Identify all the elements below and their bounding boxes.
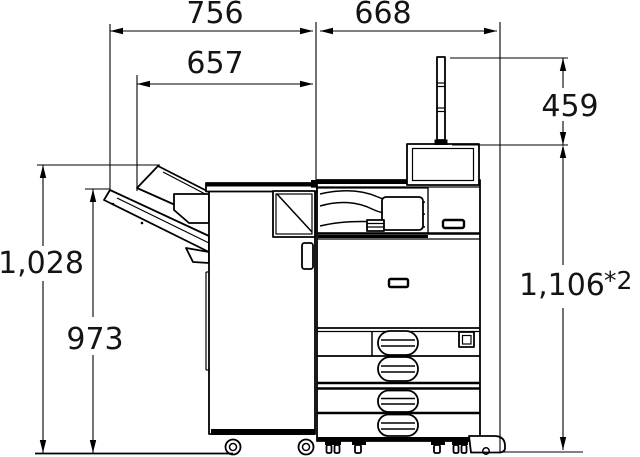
dim-label-668: 668	[354, 0, 411, 31]
door-catch-tab	[302, 243, 313, 269]
tray4-handle	[378, 415, 418, 437]
dimension-diagram-svg: 756 668 657 459 1,028 973 1,106 *2	[0, 0, 640, 457]
finisher-upper-tray-bracket	[174, 194, 209, 223]
tray1-handle	[378, 331, 418, 355]
foot-1	[325, 442, 341, 454]
dim-973	[85, 189, 110, 453]
dim-label-1106-note: *2	[604, 266, 632, 295]
foot-3	[431, 442, 445, 454]
dim-label-756: 756	[186, 0, 243, 31]
finisher-caster-left	[226, 440, 241, 455]
output-tray-wall	[382, 197, 423, 230]
finisher-unit	[104, 166, 317, 455]
diagram-stage: 756 668 657 459 1,028 973 1,106 *2	[0, 0, 640, 457]
output-paper-stop	[367, 220, 384, 231]
control-panel	[407, 144, 479, 185]
dim-label-1028: 1,028	[0, 246, 84, 281]
printer-unit	[302, 57, 505, 454]
dim-label-1106: 1,106	[519, 268, 605, 303]
foot-4	[452, 442, 468, 454]
tray2-handle	[378, 357, 418, 381]
dim-label-459: 459	[541, 89, 598, 124]
finisher-caster-right	[299, 440, 314, 455]
control-panel-pole	[435, 57, 448, 145]
finisher-bridge-notch	[273, 191, 315, 237]
dim-label-973: 973	[66, 322, 123, 357]
dim-657	[137, 81, 313, 87]
printer-feet	[325, 442, 468, 454]
tray3-handle	[378, 391, 418, 413]
finisher-base	[211, 429, 315, 435]
foot-2	[352, 442, 366, 454]
printer-base	[317, 437, 480, 442]
dim-label-657: 657	[186, 46, 243, 81]
